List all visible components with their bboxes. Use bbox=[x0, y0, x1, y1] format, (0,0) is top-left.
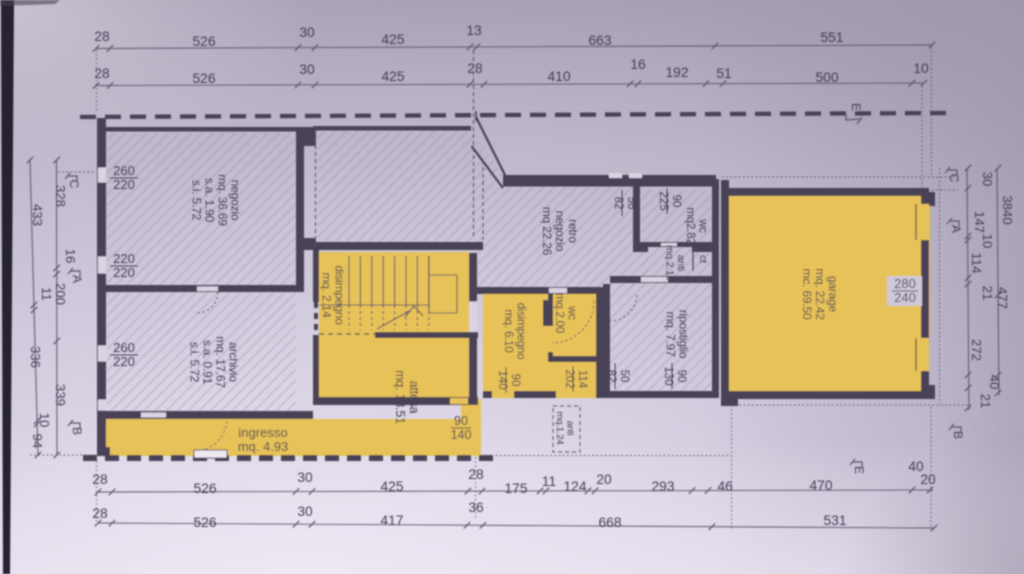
svg-text:28: 28 bbox=[94, 29, 110, 44]
svg-text:garage: garage bbox=[826, 276, 840, 313]
svg-text:11: 11 bbox=[39, 287, 54, 301]
svg-text:11: 11 bbox=[542, 474, 556, 489]
svg-text:336: 336 bbox=[28, 346, 43, 368]
svg-text:negozio: negozio bbox=[553, 211, 567, 252]
svg-text:s.i. 5.72: s.i. 5.72 bbox=[188, 342, 202, 383]
svg-text:mq.2.19: mq.2.19 bbox=[663, 245, 675, 282]
svg-text:410: 410 bbox=[547, 69, 570, 84]
svg-text:wc: wc bbox=[565, 305, 577, 320]
svg-text:s.i. 5.72: s.i. 5.72 bbox=[190, 180, 204, 221]
svg-text:ripostiglio: ripostiglio bbox=[677, 310, 691, 359]
svg-text:425: 425 bbox=[380, 479, 403, 494]
svg-text:260: 260 bbox=[113, 163, 135, 178]
svg-text:140: 140 bbox=[451, 428, 472, 442]
svg-text:30: 30 bbox=[299, 62, 315, 77]
svg-text:551: 551 bbox=[820, 30, 843, 45]
svg-text:260: 260 bbox=[113, 340, 135, 355]
svg-text:28: 28 bbox=[467, 61, 483, 76]
svg-text:82: 82 bbox=[605, 370, 617, 383]
svg-text:3840: 3840 bbox=[1000, 195, 1015, 224]
svg-text:negozio: negozio bbox=[229, 180, 243, 221]
svg-text:28: 28 bbox=[92, 472, 108, 487]
svg-text:36: 36 bbox=[468, 500, 484, 515]
svg-text:175: 175 bbox=[504, 481, 527, 496]
svg-text:C: C bbox=[67, 180, 81, 189]
svg-text:90: 90 bbox=[675, 370, 687, 383]
svg-text:140: 140 bbox=[496, 370, 508, 389]
svg-text:mq. 22.42: mq. 22.42 bbox=[813, 268, 827, 320]
svg-text:30: 30 bbox=[297, 504, 313, 519]
svg-text:425: 425 bbox=[381, 32, 404, 47]
svg-text:28: 28 bbox=[94, 66, 110, 81]
svg-text:500: 500 bbox=[815, 70, 838, 85]
svg-text:293: 293 bbox=[651, 479, 674, 494]
svg-text:220: 220 bbox=[113, 177, 135, 192]
svg-text:disimpegno: disimpegno bbox=[514, 303, 526, 360]
svg-text:mq. 2.14: mq. 2.14 bbox=[320, 272, 334, 318]
svg-text:retro: retro bbox=[566, 219, 580, 243]
svg-text:147: 147 bbox=[972, 211, 987, 233]
svg-text:mq. 13.51: mq. 13.51 bbox=[393, 370, 407, 424]
svg-text:s.a. 0.91: s.a. 0.91 bbox=[201, 340, 215, 385]
svg-text:mq. 36.69: mq. 36.69 bbox=[216, 174, 230, 226]
svg-text:anti: anti bbox=[675, 255, 687, 271]
svg-text:28: 28 bbox=[92, 506, 108, 521]
svg-text:mq. 7.97: mq. 7.97 bbox=[664, 311, 678, 357]
svg-text:51: 51 bbox=[716, 66, 731, 81]
svg-text:50: 50 bbox=[618, 370, 630, 383]
svg-text:668: 668 bbox=[598, 515, 621, 530]
svg-text:225: 225 bbox=[657, 191, 669, 210]
svg-text:21: 21 bbox=[980, 286, 995, 301]
svg-text:94: 94 bbox=[30, 434, 45, 449]
svg-text:82: 82 bbox=[612, 197, 624, 210]
svg-text:mq. 17.67: mq. 17.67 bbox=[214, 336, 228, 388]
svg-text:attesa: attesa bbox=[407, 381, 421, 414]
svg-text:470: 470 bbox=[809, 478, 832, 493]
svg-text:663: 663 bbox=[588, 33, 611, 48]
svg-text:archivio: archivio bbox=[227, 342, 241, 382]
svg-text:200: 200 bbox=[53, 283, 68, 305]
svg-text:16: 16 bbox=[63, 249, 78, 264]
svg-text:328: 328 bbox=[53, 185, 68, 207]
svg-text:s.a. 1.90: s.a. 1.90 bbox=[203, 178, 217, 223]
svg-text:90: 90 bbox=[454, 414, 468, 428]
svg-text:280: 280 bbox=[894, 276, 916, 291]
svg-text:433: 433 bbox=[30, 204, 45, 226]
svg-text:C: C bbox=[947, 174, 961, 183]
svg-text:56: 56 bbox=[625, 197, 637, 210]
svg-text:425: 425 bbox=[381, 69, 404, 84]
svg-text:ingresso: ingresso bbox=[238, 425, 287, 440]
svg-text:mq.2.00: mq.2.00 bbox=[553, 293, 565, 333]
svg-text:A: A bbox=[949, 225, 963, 233]
svg-text:mq 22.26: mq 22.26 bbox=[540, 207, 554, 256]
svg-text:114: 114 bbox=[969, 252, 984, 273]
svg-text:28: 28 bbox=[468, 467, 484, 482]
svg-text:272: 272 bbox=[969, 339, 984, 361]
svg-text:526: 526 bbox=[193, 515, 216, 530]
svg-text:30: 30 bbox=[299, 25, 315, 40]
svg-text:wc: wc bbox=[696, 218, 708, 233]
svg-text:10: 10 bbox=[37, 413, 52, 428]
svg-text:220: 220 bbox=[113, 265, 135, 280]
svg-text:B: B bbox=[70, 427, 84, 435]
svg-text:mc. 69.50: mc. 69.50 bbox=[800, 269, 814, 320]
svg-text:90: 90 bbox=[670, 195, 682, 208]
svg-text:46: 46 bbox=[717, 479, 733, 494]
svg-text:E: E bbox=[852, 466, 866, 474]
svg-text:417: 417 bbox=[380, 513, 403, 528]
svg-text:526: 526 bbox=[192, 34, 215, 49]
svg-text:202: 202 bbox=[563, 369, 575, 388]
svg-text:124: 124 bbox=[563, 479, 586, 494]
svg-text:526: 526 bbox=[192, 71, 215, 86]
svg-text:anti: anti bbox=[564, 421, 575, 436]
svg-text:B: B bbox=[951, 431, 965, 439]
svg-text:ct: ct bbox=[697, 255, 709, 263]
svg-text:477: 477 bbox=[995, 287, 1010, 309]
svg-text:A: A bbox=[70, 275, 84, 283]
svg-text:20: 20 bbox=[596, 472, 612, 487]
svg-text:220: 220 bbox=[113, 354, 135, 369]
svg-text:30: 30 bbox=[980, 172, 995, 187]
svg-text:13: 13 bbox=[466, 23, 482, 38]
svg-text:mq. 6.10: mq. 6.10 bbox=[502, 309, 514, 352]
svg-text:339: 339 bbox=[53, 384, 68, 406]
svg-text:10: 10 bbox=[980, 234, 995, 249]
svg-text:130: 130 bbox=[662, 366, 674, 385]
svg-text:531: 531 bbox=[823, 513, 846, 528]
svg-text:192: 192 bbox=[665, 65, 688, 80]
svg-text:90: 90 bbox=[509, 374, 521, 387]
svg-text:E: E bbox=[849, 103, 863, 111]
svg-text:526: 526 bbox=[193, 481, 216, 496]
svg-text:mq2.82: mq2.82 bbox=[684, 207, 696, 244]
svg-text:220: 220 bbox=[113, 251, 135, 266]
svg-text:20: 20 bbox=[920, 472, 936, 487]
svg-text:30: 30 bbox=[297, 470, 313, 485]
svg-text:16: 16 bbox=[630, 57, 646, 72]
svg-text:40: 40 bbox=[987, 375, 1002, 390]
svg-text:114: 114 bbox=[576, 370, 588, 389]
svg-text:21: 21 bbox=[978, 394, 993, 409]
svg-text:mq. 4.93: mq. 4.93 bbox=[238, 439, 289, 454]
svg-text:240: 240 bbox=[894, 290, 916, 305]
svg-text:mq.1.24: mq.1.24 bbox=[554, 412, 565, 445]
svg-text:10: 10 bbox=[913, 61, 929, 76]
svg-text:disimpegno: disimpegno bbox=[333, 265, 347, 325]
